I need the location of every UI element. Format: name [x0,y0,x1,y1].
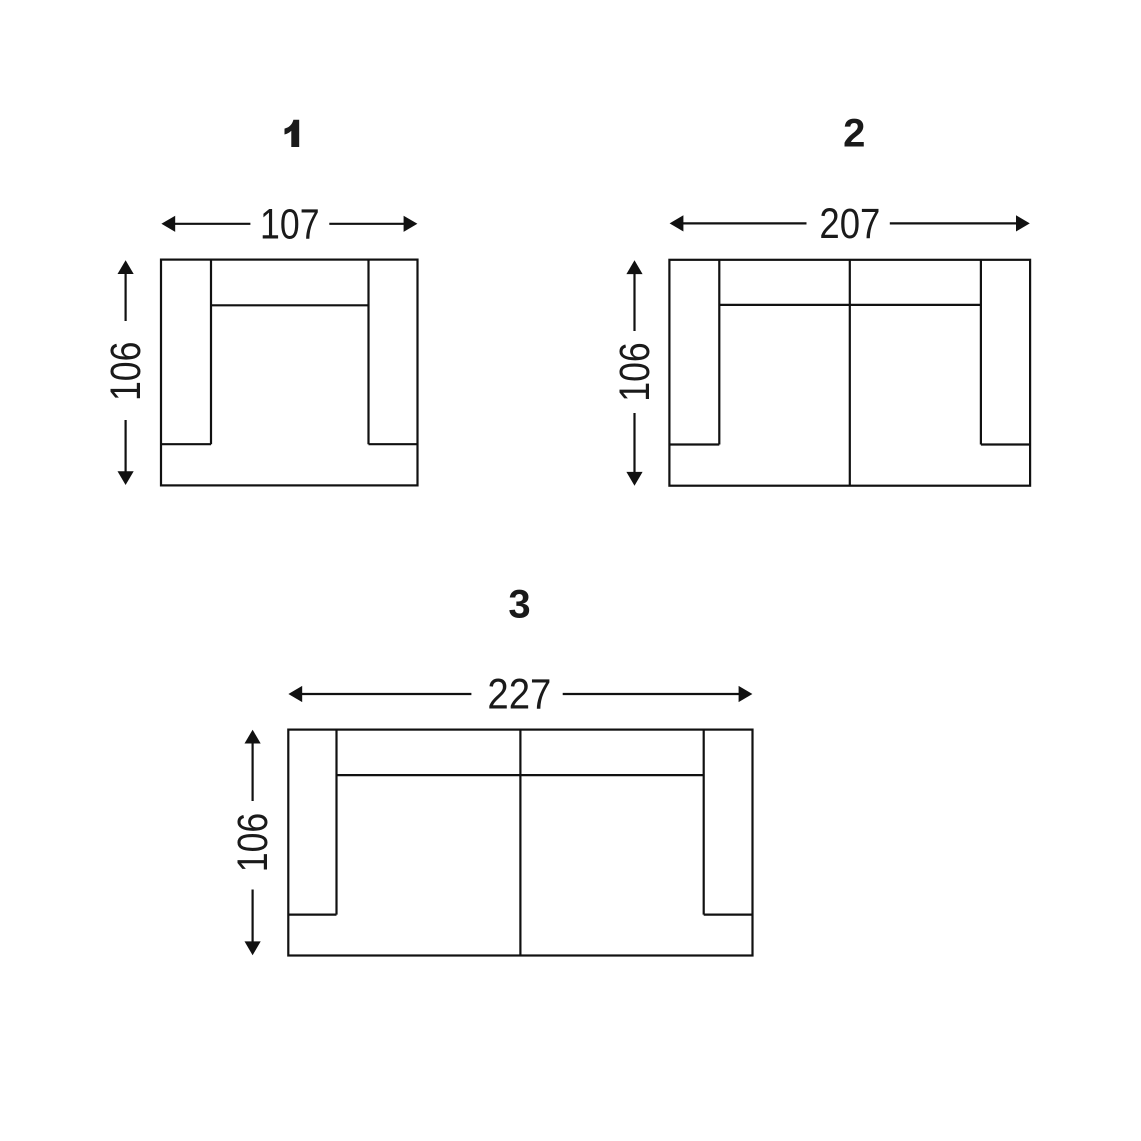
svg-text:106: 106 [612,342,659,402]
svg-text:207: 207 [819,201,880,248]
svg-text:3: 3 [508,583,530,627]
svg-text:107: 107 [260,201,320,248]
svg-text:2: 2 [843,112,865,156]
svg-text:106: 106 [230,813,277,873]
svg-text:106: 106 [103,342,150,402]
svg-text:227: 227 [487,672,551,719]
